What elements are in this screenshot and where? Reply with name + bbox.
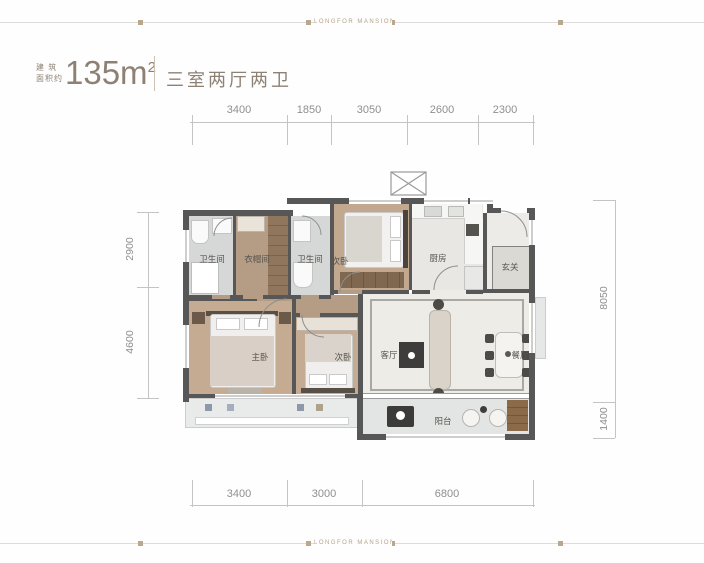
pillow — [216, 318, 240, 330]
plant — [433, 299, 444, 310]
dim-label-left: 4600 — [124, 322, 136, 362]
window — [183, 325, 189, 368]
decor-item — [316, 404, 323, 411]
area-prefix-line2: 面积约 — [36, 73, 63, 84]
desk — [297, 318, 357, 331]
deco-square — [306, 20, 311, 25]
decor-item — [205, 404, 212, 411]
window — [470, 198, 493, 204]
dim-line-left — [148, 212, 149, 398]
header-divider — [154, 56, 155, 91]
deco-square — [558, 541, 563, 546]
wall-segment — [183, 210, 293, 216]
wall-segment — [330, 204, 334, 295]
dim-tick — [331, 115, 332, 145]
room-label-balcony: 阳台 — [434, 415, 451, 427]
kitchen-sink — [424, 206, 442, 217]
ac-platform-icon — [391, 172, 426, 195]
dim-tick — [137, 398, 159, 399]
dim-label-left: 2900 — [124, 229, 136, 269]
pillow — [390, 216, 401, 238]
wall-segment — [292, 297, 296, 394]
dim-tick — [533, 480, 534, 507]
brand-text-top: LONGFOR MANSION — [314, 17, 392, 27]
floorplan-page: LONGFOR MANSION LONGFOR MANSION 建 筑 面积约 … — [0, 0, 704, 563]
washer-door — [396, 411, 405, 420]
entry-door-opening — [501, 208, 527, 213]
dim-label-top: 2300 — [477, 104, 533, 116]
room-label-bathroom-1: 卫生间 — [199, 253, 225, 265]
window — [424, 198, 468, 204]
window — [386, 434, 505, 440]
room-label-bedroom-3: 次卧 — [334, 351, 351, 363]
room-label-cloakroom: 衣帽间 — [244, 253, 270, 265]
wall-segment — [409, 204, 412, 290]
sofa — [429, 310, 451, 390]
room-label-kitchen: 厨房 — [429, 252, 446, 264]
bay-window-sill — [195, 417, 349, 425]
area-number: 135m — [65, 54, 148, 91]
room-label-foyer: 玄关 — [501, 261, 518, 273]
balcony-cabinet — [507, 400, 528, 431]
dim-label-bottom: 6800 — [419, 488, 475, 500]
fridge — [464, 266, 484, 290]
room-label-living-room: 客厅 — [380, 349, 397, 361]
area-prefix: 建 筑 面积约 — [36, 62, 63, 84]
door-opening — [430, 290, 466, 294]
wardrobe — [268, 216, 288, 295]
area-value: 135m2 — [65, 50, 156, 91]
wall-segment — [358, 293, 363, 398]
dim-tick — [407, 115, 408, 145]
door-opening — [338, 290, 362, 294]
brand-text-bottom: LONGFOR MANSION — [314, 538, 392, 548]
dim-tick — [478, 115, 479, 145]
dim-label-bottom: 3000 — [296, 488, 352, 500]
dim-tick — [192, 115, 193, 145]
wall-segment — [487, 289, 535, 293]
dim-tick — [287, 115, 288, 145]
chair — [485, 368, 494, 377]
dim-label-top: 3400 — [211, 104, 267, 116]
deco-square — [306, 541, 311, 546]
toilet — [191, 220, 209, 244]
dim-line-top — [190, 122, 535, 123]
deco-square — [558, 20, 563, 25]
wardrobe — [340, 272, 404, 288]
window — [349, 198, 401, 204]
pillow — [329, 374, 347, 385]
tv-dot — [408, 352, 415, 359]
kitchen-counter — [412, 204, 482, 219]
chair — [485, 334, 494, 343]
window — [529, 220, 535, 245]
exterior-bay — [535, 297, 546, 359]
dim-tick — [593, 200, 615, 201]
side-table — [480, 406, 487, 413]
room-label-dining-room: 餐厅 — [511, 349, 528, 361]
room-label-bedroom-2: 次卧 — [331, 255, 348, 267]
sink — [293, 220, 311, 242]
nightstand — [192, 312, 205, 324]
headboard — [301, 388, 355, 393]
dim-tick — [287, 480, 288, 507]
headboard — [403, 210, 408, 268]
chair — [485, 351, 494, 360]
dim-label-bottom: 3400 — [211, 488, 267, 500]
door-opening — [300, 313, 320, 317]
dim-label-right: 8050 — [598, 278, 610, 318]
deco-square — [138, 541, 143, 546]
dim-label-top: 2600 — [414, 104, 470, 116]
area-prefix-line1: 建 筑 — [36, 62, 63, 73]
lounge-chair — [462, 409, 480, 427]
dim-tick — [362, 480, 363, 507]
deco-square — [138, 20, 143, 25]
bay-window — [215, 394, 345, 398]
room-label-master-bedroom: 主卧 — [251, 351, 268, 363]
pillow — [244, 318, 268, 330]
dim-line-right — [615, 200, 616, 438]
wall-segment — [233, 216, 236, 295]
wall-segment — [288, 216, 291, 295]
dresser — [237, 216, 265, 232]
decor-item — [297, 404, 304, 411]
dim-label-top: 1850 — [281, 104, 337, 116]
dim-tick — [533, 115, 534, 145]
window — [529, 303, 535, 353]
room-label-bathroom-2: 卫生间 — [297, 253, 323, 265]
shower — [191, 262, 219, 294]
door-opening — [212, 295, 230, 299]
bench — [228, 388, 262, 393]
pillow — [309, 374, 327, 385]
lounge-chair — [489, 409, 507, 427]
decor-item — [227, 404, 234, 411]
dim-label-right: 1400 — [598, 399, 610, 439]
wall-segment — [493, 208, 501, 213]
dim-tick — [137, 212, 159, 213]
sink — [212, 218, 232, 234]
cooktop — [466, 224, 479, 236]
door-opening — [243, 295, 263, 299]
layout-title: 三室两厅两卫 — [166, 66, 292, 92]
table-decor — [505, 351, 511, 357]
dim-label-top: 3050 — [341, 104, 397, 116]
pillow — [390, 240, 401, 262]
wall-segment — [483, 213, 487, 293]
stove — [448, 206, 464, 217]
dim-tick — [137, 287, 159, 288]
toilet — [293, 262, 313, 288]
door-opening — [301, 295, 319, 299]
bed-blanket — [346, 216, 382, 262]
window — [183, 230, 189, 262]
dim-tick — [192, 480, 193, 507]
nightstand — [279, 312, 291, 324]
sliding-door — [363, 393, 529, 399]
